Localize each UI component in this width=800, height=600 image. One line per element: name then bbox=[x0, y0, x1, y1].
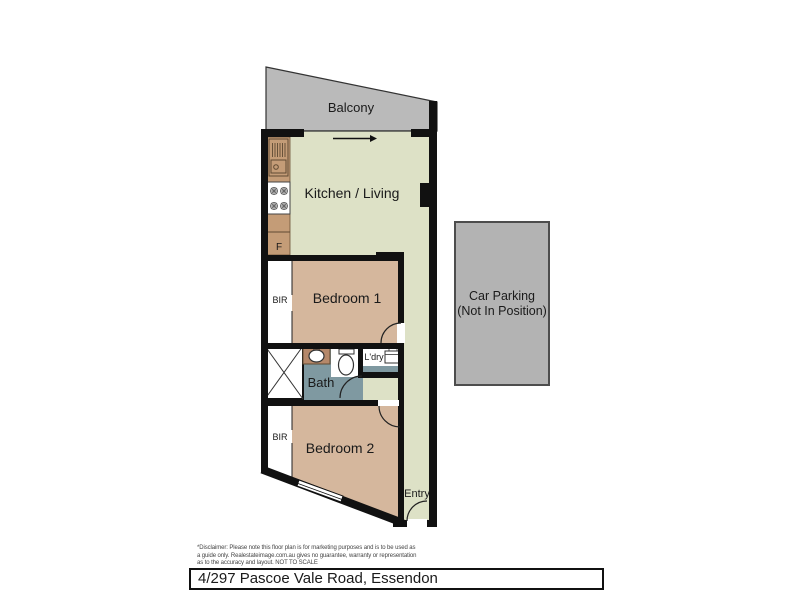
disclaimer-line: as to the accuracy and layout. NOT TO SC… bbox=[197, 560, 427, 568]
disclaimer-line: a guide only. Realestateimage.com.au giv… bbox=[197, 553, 427, 561]
address-text: 4/297 Pascoe Vale Road, Essendon bbox=[198, 570, 438, 587]
car-parking-label-line2: (Not In Position) bbox=[457, 304, 547, 318]
door-opening-bedroom2 bbox=[378, 400, 399, 406]
wall-right bbox=[429, 101, 437, 527]
car-parking-label-line1: Car Parking bbox=[469, 289, 535, 303]
wall-interior-right bbox=[398, 255, 404, 522]
cooktop-icon bbox=[267, 182, 290, 214]
kitchen-bench bbox=[267, 137, 290, 255]
disclaimer-line: *Disclaimer: Please note this floor plan… bbox=[197, 545, 427, 553]
door-opening-entry bbox=[407, 519, 427, 528]
wall-pier bbox=[420, 183, 429, 207]
fridge-label: F bbox=[276, 242, 282, 253]
wall-left bbox=[261, 129, 268, 473]
entry-label: Entry bbox=[404, 488, 430, 500]
bir1-label: BIR bbox=[272, 295, 288, 305]
shower-icon bbox=[265, 346, 303, 399]
disclaimer-text: *Disclaimer: Please note this floor plan… bbox=[197, 545, 427, 568]
kitchen-living-label: Kitchen / Living bbox=[305, 185, 400, 201]
laundry-label: L'dry bbox=[364, 352, 384, 362]
floorplan-drawing: Balcony Kitchen / Living Bedroom 1 BIR F… bbox=[0, 0, 800, 600]
toilet-icon bbox=[331, 346, 358, 377]
bedroom2-label: Bedroom 2 bbox=[306, 440, 375, 456]
door-opening-bedroom1 bbox=[397, 323, 405, 343]
floorplan-page: Balcony Kitchen / Living Bedroom 1 BIR F… bbox=[0, 0, 800, 600]
address-bar: 4/297 Pascoe Vale Road, Essendon bbox=[189, 568, 604, 590]
vanity-basin-icon bbox=[303, 347, 330, 364]
balcony-label: Balcony bbox=[328, 100, 375, 115]
laundry-floor-strip bbox=[363, 366, 398, 373]
bir2-label: BIR bbox=[272, 432, 288, 442]
bath-label: Bath bbox=[308, 375, 335, 390]
bedroom1-label: Bedroom 1 bbox=[313, 290, 382, 306]
balcony-area bbox=[266, 67, 437, 131]
wall-laundry-bottom bbox=[358, 372, 404, 378]
wall-bath-top bbox=[261, 343, 404, 349]
wall-bottom-right-of-door bbox=[427, 520, 437, 527]
